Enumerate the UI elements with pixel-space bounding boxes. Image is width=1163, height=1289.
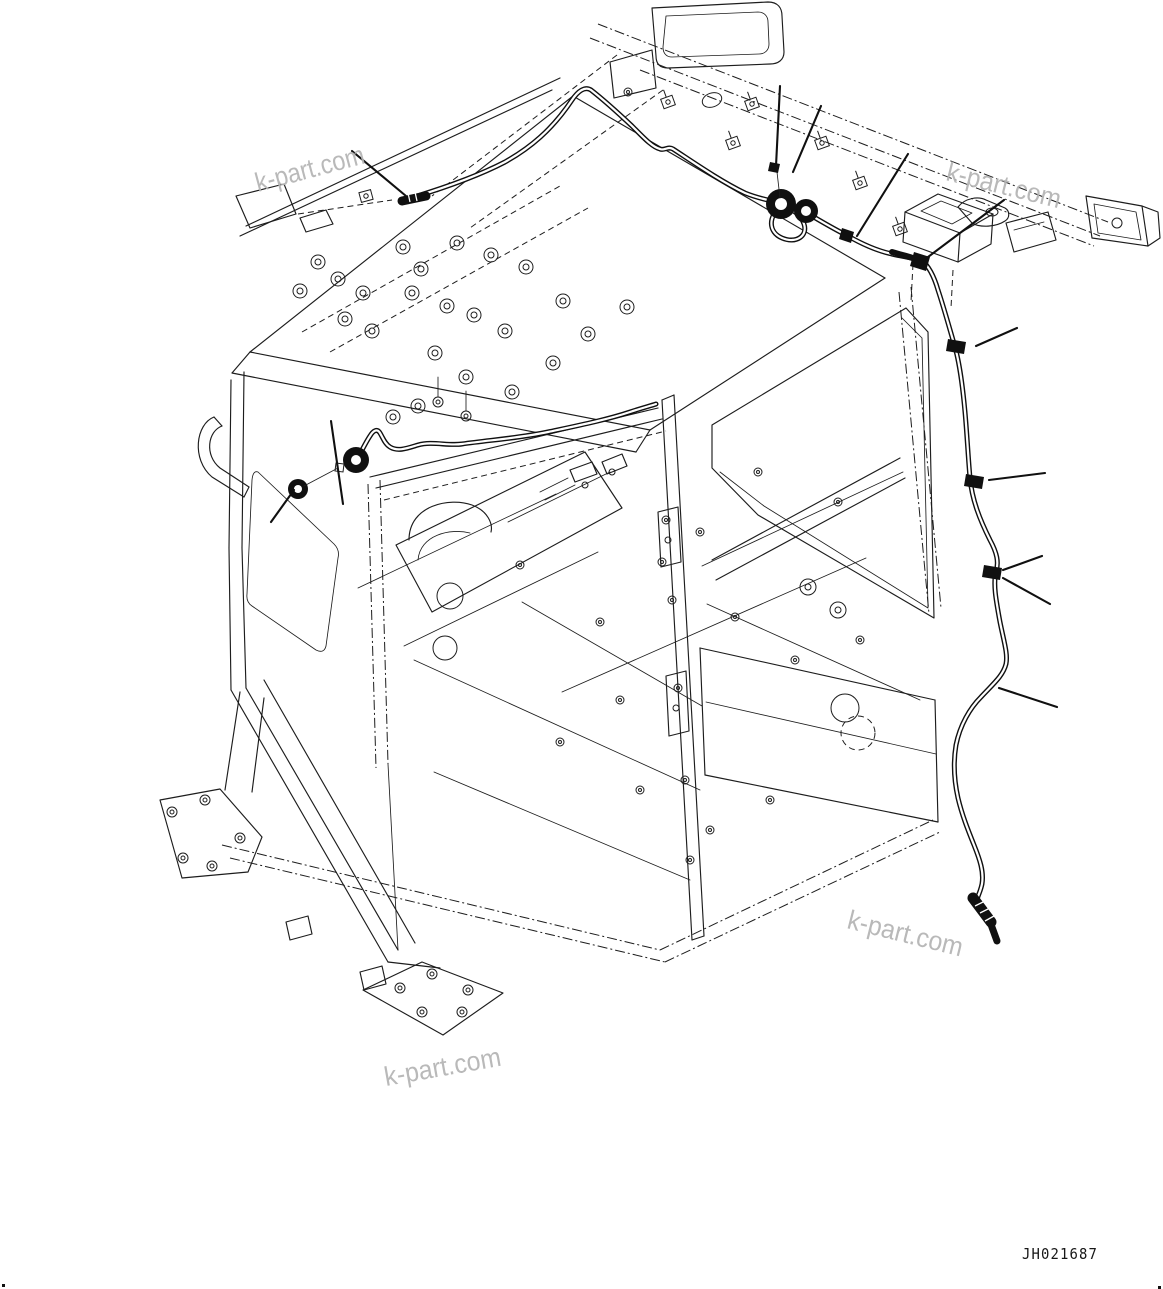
plate-hole [398,986,402,990]
beam-nut [661,95,676,109]
floor-brace [702,472,903,566]
roof-washer [550,360,556,366]
plate-hole [395,983,405,993]
interior-bolt [754,468,762,476]
beam-nut [658,88,675,109]
grab-handle [244,487,249,497]
roof-washer [498,324,512,338]
floor-brace [508,472,610,522]
beam-end-bracket [1086,196,1148,246]
platform-washer [800,579,816,595]
bracket-nut [359,190,373,203]
roof-washer [405,286,419,300]
center-pillar [662,400,692,940]
floor-bracket [286,916,312,940]
beam-nut [850,169,867,190]
roof-washer [581,327,595,341]
bracket-nut [359,190,373,203]
floor-brace [434,772,690,880]
hinge-hole [673,705,679,711]
pillar-bolt [671,599,674,602]
watermark: k-part.com [252,140,368,198]
interior-bolt [696,528,704,536]
roof-washer [556,294,570,308]
left-window [247,472,339,652]
left-pillar [229,380,231,548]
roof-washer [505,385,519,399]
plate-hole [210,864,214,868]
interior-bolt [639,789,642,792]
roof-panel-edge [232,352,250,373]
front-pillar [380,480,388,764]
roof-washer [390,414,396,420]
interior-bolt [596,618,604,626]
beam-nut [893,222,908,236]
panel-cutout [831,694,859,722]
mount-hidden-edge [951,270,953,308]
roof-washer [297,288,303,294]
leader-line [989,473,1045,480]
rear-lower-panel [935,700,938,822]
page-dot [2,1284,5,1287]
floor-rail [222,845,660,950]
antenna-mount-top [905,194,993,233]
rear-lower-panel [700,648,705,775]
grab-handle [214,417,222,426]
leader-line [776,86,780,166]
roof-grommet [775,198,787,210]
plate-hole [207,861,217,871]
beam-nut [818,131,821,139]
beam-end-bracket-inner [1094,204,1141,240]
cable-band-clamp [964,474,984,489]
interior-bolt [709,829,712,832]
roof-washer [432,350,438,356]
beam-nut [853,176,868,190]
plate-hole [178,853,188,863]
interior-bolt [599,621,602,624]
interior-bolt [794,659,797,662]
beam-nut [812,129,829,150]
roof-washer [411,399,425,413]
roof-washer [519,260,533,274]
rear-lower-panel [705,775,938,822]
cable-bolt [768,162,780,173]
watermark: k-part.com [845,905,967,963]
roof-washer [342,316,348,322]
interior-bolt [559,741,562,744]
interior-bolt [791,656,799,664]
beam-nut [748,92,751,100]
beam-nut [742,90,759,111]
roof-washer [546,356,560,370]
front-pillar [368,484,376,768]
plate-hole [427,969,437,979]
beam-nut [897,226,903,232]
lever-line [540,478,568,492]
bracket-bolt [627,91,630,94]
pillar-bolt [668,596,676,604]
seat-platform [716,478,905,580]
beam-nut [729,131,732,139]
rear-panel-seam [706,702,936,754]
beam-nut [723,129,740,150]
watermark: k-part.com [944,157,1065,214]
interior-bolt [556,738,564,746]
roof-washer [444,303,450,309]
roof-washer [293,284,307,298]
bracket-hole [1112,218,1122,228]
roof-washer [471,312,477,318]
roof-washer [560,298,566,304]
drawing-number: JH021687 [1022,1245,1098,1263]
plate-hole [238,836,242,840]
beam-nut [856,171,859,179]
roof-bolt [461,411,471,421]
roof-panel-edge [250,96,573,352]
interior-bolt [636,786,644,794]
roof-washer [315,259,321,265]
roof-washer [428,346,442,360]
roof-washer [467,308,481,322]
pillar-bolt [665,519,668,522]
leader-line [331,421,343,504]
interior-bolt [769,799,772,802]
platform-washer [805,584,811,590]
roof-washer [450,236,464,250]
roof-washer [418,266,424,272]
roof-washer [459,370,473,384]
plate-hole [203,798,207,802]
roof-washer [463,374,469,380]
roof-washer [523,264,529,270]
beam-nut [726,136,741,150]
roof-washer [360,290,366,296]
left-pillar [242,548,246,688]
roof-washer [369,328,375,334]
side-bracket [1006,212,1056,252]
bracket-nut [363,193,368,198]
panel-cutout-dashed [841,716,875,750]
interior-bolt [619,699,622,702]
floor-brace [358,494,556,588]
interior-bolt [706,826,714,834]
front-grommet [351,455,361,465]
diagram-page: k-part.comk-part.comk-part.comk-part.com… [0,0,1163,1289]
roof-bolt [433,397,443,407]
roof-bolt [464,414,468,418]
roof-washer [488,252,494,258]
roof-washer [338,312,352,326]
interior-handle [409,502,491,540]
roof-washer [509,389,515,395]
cable-band-clamp [946,339,966,354]
roof-washer [484,248,498,262]
right-window-frame-inner [720,318,928,608]
center-pillar [692,936,704,940]
washer-axis-line [304,468,338,486]
panel-hole [433,636,457,660]
right-window-frame [712,308,934,618]
beam-nut [896,217,899,225]
interior-bolt [856,636,864,644]
plate-hole [167,807,177,817]
roof-washer [414,262,428,276]
roof-washer [409,290,415,296]
interior-bolt [658,558,666,566]
roof-panel-edge [650,278,885,430]
beam-top-bracket-inner [663,12,769,57]
roof-washer [311,255,325,269]
interior-bolt [699,531,702,534]
roof-washer [386,410,400,424]
side-bracket-inner [1014,222,1044,230]
front-pillar-foot [388,764,398,950]
lever-block [570,462,597,482]
plate-hole [235,833,245,843]
center-pillar [662,395,674,400]
plate-hole [466,988,470,992]
roof-washer [335,276,341,282]
plate-hole [181,856,185,860]
pillar-bolt [684,779,687,782]
roof-washer [356,286,370,300]
beam-nut [857,180,863,186]
roof-washer [400,244,406,250]
plate-hole [170,810,174,814]
roof-washer [415,403,421,409]
roof-grommet [801,206,811,216]
roof-washer [440,299,454,313]
left-pillar [242,372,244,548]
beam-top-bracket [652,2,784,68]
parts-diagram-canvas: k-part.comk-part.comk-part.comk-part.com… [0,0,1163,1289]
grab-handle [198,417,244,497]
beam-nut [665,99,671,105]
floor-brace [404,552,598,646]
leader-line [999,688,1057,707]
beam-hole [700,90,724,110]
interior-bolt [766,796,774,804]
floor-bracket [360,966,386,990]
roof-left-bracket [300,210,333,232]
watermark: k-part.com [382,1042,503,1092]
center-pillar [674,395,704,936]
interior-bolt [616,696,624,704]
floor-brace [414,660,700,790]
front-wall-panel [396,452,622,612]
roof-washer [396,240,410,254]
platform-washer [835,607,841,613]
plate-hole [200,795,210,805]
plate-hole [420,1010,424,1014]
lower-left-body [264,680,415,943]
roof-bolt [436,400,440,404]
panel-hole [437,583,463,609]
beam-nut [730,140,736,146]
roof-front-face [636,430,650,452]
leader-line [1003,556,1042,570]
leader-line [976,328,1017,346]
plate-hole [457,1007,467,1017]
roof-washer [624,304,630,310]
interior-bolt [757,471,760,474]
platform-washer [830,602,846,618]
roof-panel-edge [250,352,650,430]
interior-bolt [859,639,862,642]
seat-platform [712,458,900,560]
beam-nut [664,90,667,98]
plate-hole [417,1007,427,1017]
roof-washer [502,328,508,334]
roof-washer [585,331,591,337]
left-riser [225,692,240,790]
leader-line [1003,578,1050,604]
plate-hole [463,985,473,995]
rear-pillar [911,287,941,608]
interior-bolt [661,561,664,564]
rear-lower-panel [700,648,935,700]
plate-hole [430,972,434,976]
beam-nut [819,140,825,146]
roof-washer [620,300,634,314]
pillar-washer [294,485,302,493]
left-pillar [229,548,231,690]
pillar-bolt [689,859,692,862]
plate-hole [460,1010,464,1014]
floor-brace [562,558,866,692]
lower-left-body [388,962,440,968]
floor-rail [230,858,665,962]
interior-bolt [519,564,522,567]
